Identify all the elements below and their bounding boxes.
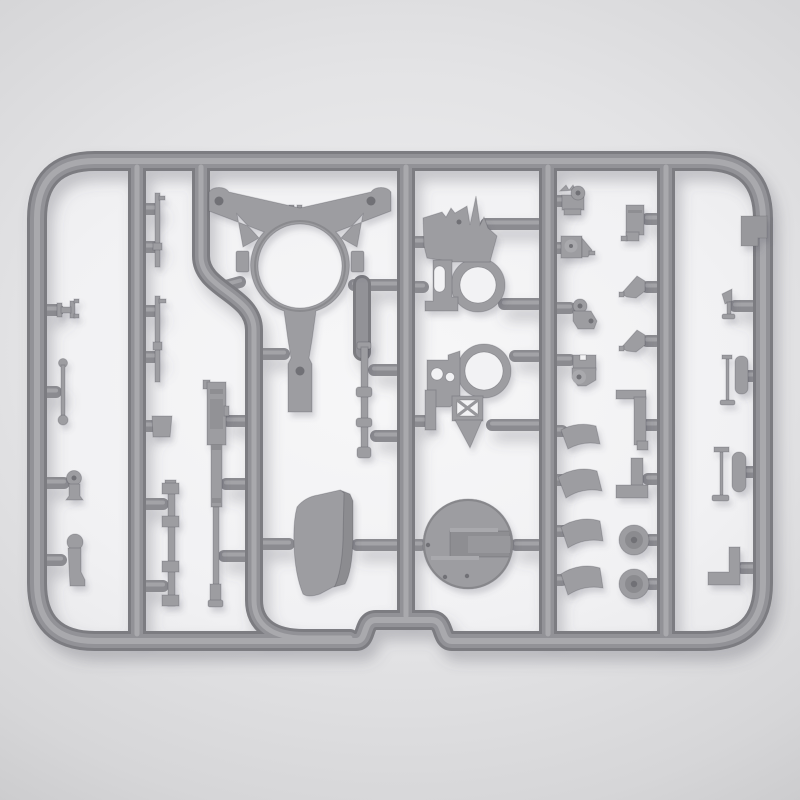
arm <box>616 485 648 498</box>
arm <box>74 314 79 318</box>
part-hub-disc-2 <box>619 569 649 599</box>
hub-hole <box>631 581 637 587</box>
box <box>626 205 644 235</box>
nub <box>159 196 165 200</box>
jacket-ring <box>211 445 222 450</box>
rod <box>155 193 160 267</box>
flange <box>162 561 179 572</box>
pin <box>727 302 731 315</box>
hole <box>426 543 430 547</box>
boss-hole <box>577 375 582 380</box>
flange <box>162 595 179 606</box>
eye-hole <box>72 476 77 481</box>
body <box>66 484 83 500</box>
hole <box>446 373 455 382</box>
hole <box>465 574 469 578</box>
axle-rod <box>168 484 175 606</box>
axle <box>61 307 71 313</box>
shield-face <box>294 490 344 596</box>
part-eye-bracket-1 <box>560 185 585 215</box>
arm <box>74 299 79 303</box>
leg <box>634 397 646 445</box>
thin-rod <box>720 451 723 497</box>
rivet <box>457 220 462 225</box>
thin-rod <box>726 358 729 402</box>
notch <box>580 355 586 360</box>
mount-hole <box>215 197 224 206</box>
part-turntable-disc <box>423 499 513 589</box>
barrel-jacket <box>211 445 222 507</box>
sprue-photo <box>0 0 800 800</box>
rod-head <box>722 355 732 359</box>
ring <box>356 387 372 397</box>
jacket-ring <box>212 498 221 503</box>
ball-end <box>58 415 68 425</box>
mount-hole <box>367 197 376 206</box>
nub <box>159 299 166 303</box>
leg <box>631 458 643 489</box>
rod-head <box>714 447 729 452</box>
mount-hole <box>296 367 305 376</box>
muzzle-cap <box>208 600 223 607</box>
boss-hole <box>569 244 573 248</box>
slot-hole <box>434 266 445 292</box>
collar <box>153 243 162 250</box>
base <box>722 314 735 319</box>
nub <box>619 292 624 297</box>
rod <box>61 365 65 418</box>
boss-hole <box>578 304 583 309</box>
receiver-detail <box>210 399 223 429</box>
lip <box>626 232 639 241</box>
ring-hole <box>460 267 496 303</box>
side-knob <box>224 406 229 416</box>
foot <box>564 209 581 215</box>
rod-foot <box>720 400 735 405</box>
barrel <box>213 507 219 585</box>
ring-hole <box>465 352 503 390</box>
flange <box>162 516 179 527</box>
rod <box>361 347 368 455</box>
ridge <box>431 556 479 560</box>
rod <box>155 296 160 382</box>
muzzle <box>210 584 221 602</box>
hub-hole <box>631 537 637 543</box>
hole <box>443 575 447 579</box>
part-eye-bracket-4 <box>572 355 596 386</box>
part-shape <box>236 251 249 272</box>
nub <box>589 251 595 255</box>
part-hub-disc-1 <box>619 525 649 555</box>
part-grip-bracket <box>66 471 83 501</box>
rod-foot <box>712 495 729 501</box>
receiver-detail <box>210 389 223 394</box>
grip-bar <box>735 356 748 394</box>
base-bulge <box>357 447 371 458</box>
flange <box>162 483 179 494</box>
foot <box>637 441 648 450</box>
slot-inner <box>468 536 510 553</box>
part-shape <box>425 390 436 430</box>
nub <box>619 346 624 351</box>
ring <box>356 418 372 427</box>
part-square-block <box>152 416 172 437</box>
boss-hole <box>576 191 581 196</box>
grip-bar <box>732 452 746 492</box>
part-armor-shield <box>294 490 353 596</box>
part-shape <box>351 251 364 272</box>
box-detail <box>628 210 642 213</box>
hole <box>589 319 594 324</box>
nub <box>621 236 627 241</box>
hole <box>431 368 443 380</box>
ridge <box>450 528 498 532</box>
collar <box>153 342 162 350</box>
